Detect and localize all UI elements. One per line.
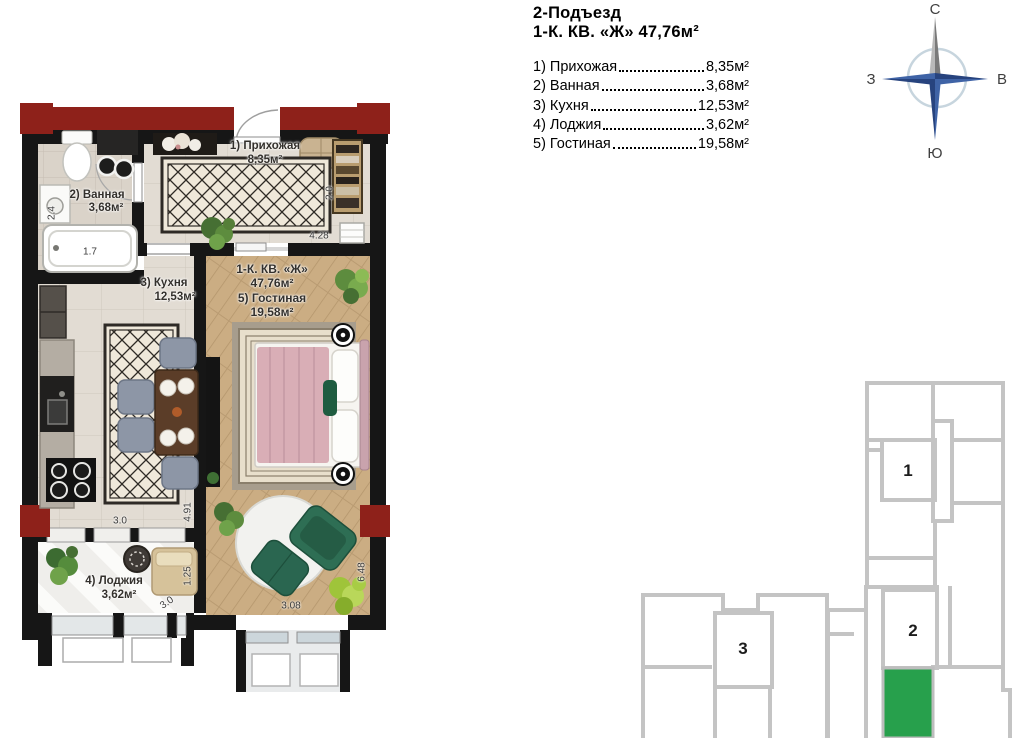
dot-leader bbox=[602, 89, 704, 91]
round-mirror bbox=[115, 160, 133, 178]
dot-leader bbox=[591, 109, 696, 111]
kitchen-loggia-window bbox=[47, 528, 85, 542]
kitchen-faucet bbox=[59, 391, 65, 397]
headboard bbox=[360, 340, 369, 470]
dim-wardrobe: 2.0 bbox=[325, 186, 336, 200]
pillow bbox=[332, 410, 358, 462]
room-name: 3) Кухня bbox=[533, 98, 589, 114]
dresser bbox=[340, 223, 364, 243]
dim-bathtub: 1.7 bbox=[83, 247, 97, 258]
sink bbox=[98, 157, 116, 175]
building-key-plan: 1 2 3 bbox=[620, 372, 1024, 738]
dot-leader bbox=[613, 147, 696, 149]
bathroom-vanity bbox=[97, 130, 138, 155]
room-area: 3,62м² bbox=[706, 117, 749, 133]
legend-title-apartment: 1-К. КВ. «Ж» 47,76м² bbox=[533, 23, 749, 42]
apartment-floorplan: 1) Прихожая 8,35м² 2) Ванная 3,68м² 3) К… bbox=[18, 100, 392, 700]
room-name: 5) Гостиная bbox=[533, 136, 611, 152]
bathroom-area: 3,68м² bbox=[89, 202, 124, 214]
legend-title-entrance: 2-Подъезд bbox=[533, 4, 749, 23]
compass-star bbox=[882, 17, 988, 140]
compass-east-label: В bbox=[997, 71, 1007, 88]
legend: 2-Подъезд 1-К. КВ. «Ж» 47,76м² 1) Прихож… bbox=[533, 4, 749, 152]
dim-living-width: 3.08 bbox=[281, 601, 300, 612]
loggia-area: 3,62м² bbox=[102, 589, 137, 601]
legend-row: 5) Гостиная 19,58м² bbox=[533, 133, 749, 152]
highlighted-apartment bbox=[883, 668, 933, 738]
dot-leader bbox=[619, 70, 704, 72]
dim-hallway: 4.28 bbox=[309, 231, 328, 242]
section-3-label: 3 bbox=[738, 639, 747, 658]
room-name: 2) Ванная bbox=[533, 78, 600, 94]
room-name: 4) Лоджия bbox=[533, 117, 601, 133]
kitchen-door-leaf bbox=[144, 244, 194, 254]
compass-rose: С Ю З В bbox=[858, 0, 1024, 166]
loggia-window bbox=[52, 616, 113, 635]
dim-kitchen-length: 4.91 bbox=[183, 502, 194, 521]
kitchen-label: 3) Кухня bbox=[140, 277, 187, 289]
hallway-area: 8,35м² bbox=[248, 154, 283, 166]
burner bbox=[52, 464, 66, 478]
tv-console bbox=[206, 357, 220, 487]
compass-west-label: З bbox=[866, 71, 875, 88]
apartment-area: 47,76м² bbox=[251, 276, 294, 290]
bathroom-label: 2) Ванная bbox=[69, 189, 124, 201]
room-name: 1) Прихожая bbox=[533, 59, 617, 75]
legend-row: 1) Прихожая 8,35м² bbox=[533, 56, 749, 75]
bathroom-door-leaf bbox=[134, 163, 142, 202]
hallway-label: 1) Прихожая bbox=[230, 140, 300, 152]
green-throw bbox=[323, 380, 337, 416]
speaker bbox=[331, 462, 355, 486]
dim-kitchen-width: 3.0 bbox=[113, 516, 127, 527]
loggia-label: 4) Лоджия bbox=[85, 575, 143, 587]
lounger-pillow bbox=[156, 552, 192, 566]
speaker bbox=[331, 323, 355, 347]
dim-bathroom-width: 2.4 bbox=[47, 206, 58, 220]
bathtub-faucet bbox=[53, 245, 59, 251]
kitchen-sink bbox=[48, 400, 67, 424]
dim-living-length: 6.48 bbox=[357, 562, 368, 581]
flowers bbox=[162, 137, 176, 151]
room-area: 19,58м² bbox=[698, 136, 749, 152]
room-area: 3,68м² bbox=[706, 78, 749, 94]
bed-blanket bbox=[257, 347, 329, 463]
apartment-label: 1-К. КВ. «Ж» bbox=[236, 262, 308, 276]
dot-leader bbox=[603, 128, 704, 130]
toilet-tank bbox=[62, 131, 92, 144]
floorplan-page: 1) Прихожая 8,35м² 2) Ванная 3,68м² 3) К… bbox=[0, 0, 1024, 738]
kitchen-area: 12,53м² bbox=[154, 291, 195, 303]
compass-icon: С Ю З В bbox=[858, 0, 1024, 166]
legend-row: 3) Кухня 12,53м² bbox=[533, 94, 749, 113]
key-plan-walls bbox=[643, 383, 1010, 738]
compass-north-label: С bbox=[930, 1, 941, 18]
key-plan-drawing: 1 2 3 bbox=[620, 372, 1024, 738]
living-area: 19,58м² bbox=[251, 305, 294, 319]
section-1-label: 1 bbox=[903, 461, 912, 480]
living-label: 5) Гостиная bbox=[238, 291, 306, 305]
bay-window-sill bbox=[252, 654, 290, 686]
loggia-window-sill bbox=[63, 638, 123, 662]
room-area: 12,53м² bbox=[698, 98, 749, 114]
section-2-label: 2 bbox=[908, 621, 917, 640]
side-table bbox=[124, 546, 150, 572]
legend-room-list: 1) Прихожая 8,35м² 2) Ванная 3,68м² 3) К… bbox=[533, 56, 749, 152]
legend-row: 4) Лоджия 3,62м² bbox=[533, 114, 749, 133]
dim-loggia-depth: 1.25 bbox=[183, 566, 194, 585]
compass-south-label: Ю bbox=[927, 145, 942, 162]
toilet bbox=[63, 143, 91, 181]
legend-row: 2) Ванная 3,68м² bbox=[533, 75, 749, 94]
room-area: 8,35м² bbox=[706, 59, 749, 75]
